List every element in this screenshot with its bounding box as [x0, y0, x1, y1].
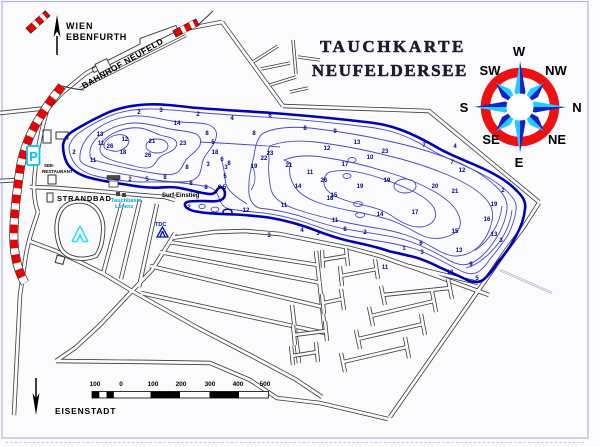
svg-text:16: 16	[484, 217, 491, 223]
svg-text:Surf-Einstieg: Surf-Einstieg	[162, 193, 200, 199]
svg-text:11: 11	[281, 203, 288, 209]
svg-text:18: 18	[327, 196, 334, 202]
svg-text:13: 13	[491, 232, 498, 238]
svg-text:2: 2	[137, 110, 141, 116]
svg-text:8: 8	[303, 126, 307, 132]
svg-text:4: 4	[300, 228, 304, 234]
svg-text:15: 15	[452, 229, 459, 235]
svg-text:8: 8	[227, 161, 231, 167]
svg-text:23: 23	[180, 141, 187, 147]
svg-text:300: 300	[205, 381, 216, 388]
svg-text:TDC: TDC	[155, 222, 166, 228]
svg-text:SEE-: SEE-	[44, 163, 55, 168]
svg-text:SW: SW	[480, 63, 502, 78]
svg-text:18: 18	[212, 150, 219, 156]
svg-text:21: 21	[452, 189, 459, 195]
svg-text:8: 8	[343, 227, 347, 233]
svg-text:13: 13	[97, 132, 104, 138]
svg-text:Lorenz: Lorenz	[115, 204, 134, 210]
svg-text:13: 13	[354, 140, 361, 146]
svg-text:14: 14	[377, 212, 384, 218]
svg-text:20: 20	[432, 184, 439, 190]
svg-text:19: 19	[357, 184, 364, 190]
svg-text:17: 17	[412, 210, 419, 216]
svg-text:23: 23	[267, 151, 274, 157]
svg-text:SE: SE	[482, 132, 500, 147]
svg-text:4: 4	[453, 144, 457, 150]
svg-text:26: 26	[321, 178, 328, 184]
svg-text:23: 23	[382, 149, 389, 155]
svg-text:NE: NE	[548, 132, 566, 147]
svg-text:13: 13	[456, 248, 463, 254]
svg-text:0: 0	[119, 381, 123, 388]
svg-text:2: 2	[72, 150, 76, 156]
svg-text:14: 14	[295, 184, 302, 190]
svg-text:3: 3	[206, 162, 210, 168]
svg-text:26: 26	[107, 144, 114, 150]
svg-text:12: 12	[243, 208, 250, 214]
svg-text:8: 8	[205, 131, 209, 137]
svg-text:6: 6	[220, 157, 224, 163]
svg-text:100: 100	[148, 381, 159, 388]
svg-text:3: 3	[159, 108, 163, 114]
svg-text:12: 12	[324, 146, 331, 152]
svg-text:19: 19	[251, 164, 258, 170]
svg-text:8: 8	[252, 131, 256, 137]
svg-text:12: 12	[459, 168, 466, 174]
svg-text:STRANDBAD: STRANDBAD	[57, 194, 112, 203]
svg-text:W: W	[513, 44, 526, 59]
svg-text:9.5: 9.5	[218, 185, 227, 191]
svg-text:3: 3	[420, 250, 424, 256]
svg-text:S: S	[460, 100, 469, 115]
svg-text:TAUCHKARTE: TAUCHKARTE	[320, 37, 466, 56]
svg-text:11: 11	[332, 218, 339, 224]
svg-text:8: 8	[204, 185, 208, 191]
svg-text:8: 8	[185, 165, 189, 171]
svg-text:4: 4	[230, 116, 234, 122]
svg-text:8: 8	[163, 175, 167, 181]
svg-text:WIEN: WIEN	[66, 21, 94, 31]
svg-text:P: P	[29, 149, 38, 164]
svg-text:200: 200	[176, 381, 187, 388]
svg-text:12: 12	[122, 137, 129, 143]
svg-text:12: 12	[447, 270, 454, 276]
svg-text:100: 100	[90, 381, 101, 388]
svg-text:10: 10	[367, 155, 374, 161]
svg-text:11: 11	[382, 265, 389, 271]
svg-text:2: 2	[128, 177, 132, 183]
svg-text:EISENSTADT: EISENSTADT	[55, 406, 116, 416]
svg-text:21: 21	[149, 139, 156, 145]
svg-text:RESTAURANT: RESTAURANT	[42, 169, 73, 174]
svg-text:19: 19	[384, 178, 391, 184]
svg-text:400: 400	[233, 381, 244, 388]
svg-text:14: 14	[174, 121, 181, 127]
svg-text:NEUFELDERSEE: NEUFELDERSEE	[312, 61, 468, 80]
svg-text:NW: NW	[545, 63, 567, 78]
svg-text:BAHNHOF NEUFELD: BAHNHOF NEUFELD	[80, 36, 165, 91]
svg-text:7: 7	[422, 143, 426, 149]
svg-text:2: 2	[363, 230, 367, 236]
svg-text:N: N	[572, 100, 581, 115]
svg-text:21: 21	[286, 163, 293, 169]
svg-text:E: E	[515, 155, 524, 170]
svg-text:500: 500	[260, 381, 271, 388]
svg-text:EBENFURTH: EBENFURTH	[66, 32, 127, 42]
svg-text:11: 11	[98, 141, 105, 147]
svg-text:19: 19	[491, 202, 498, 208]
svg-text:26: 26	[145, 153, 152, 159]
svg-text:11: 11	[307, 170, 314, 176]
svg-text:17: 17	[342, 162, 349, 168]
svg-text:5: 5	[223, 174, 227, 180]
svg-text:18: 18	[120, 150, 127, 156]
svg-text:11: 11	[90, 158, 97, 164]
